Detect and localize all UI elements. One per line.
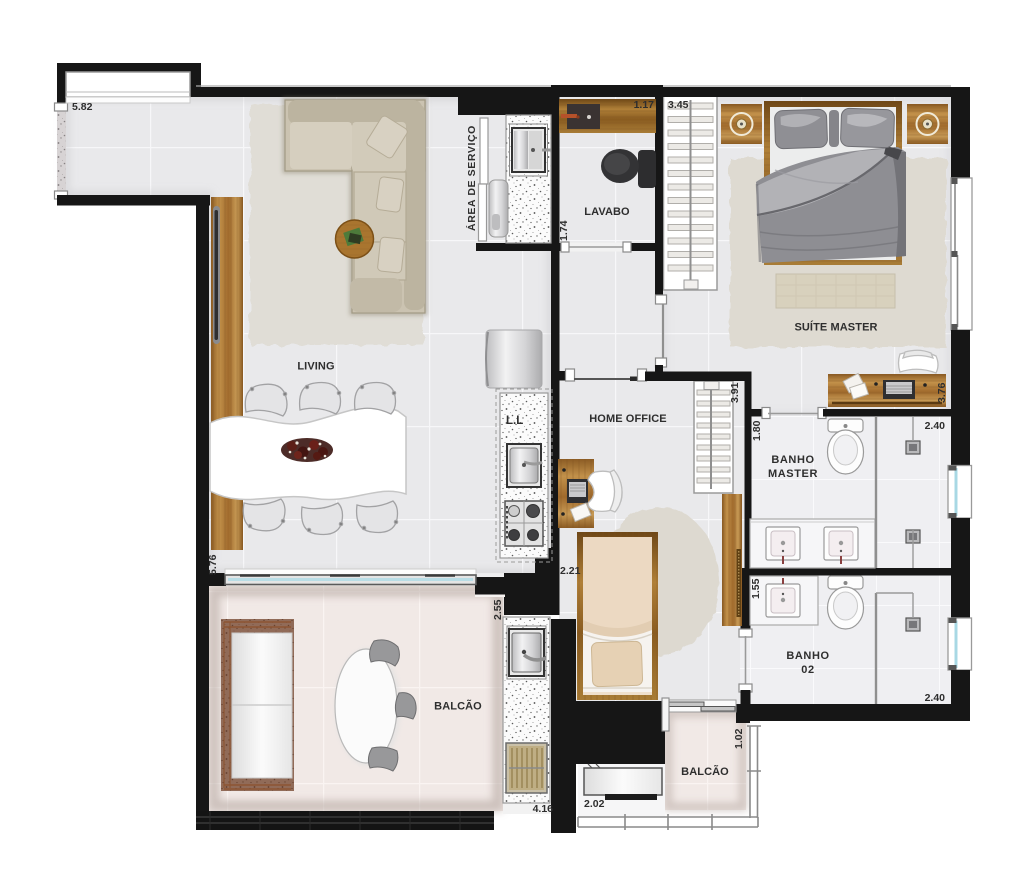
svg-text:3.76: 3.76	[936, 382, 948, 403]
svg-text:2.40: 2.40	[925, 692, 946, 704]
svg-text:1.74: 1.74	[558, 220, 570, 241]
svg-text:2.40: 2.40	[925, 420, 946, 432]
svg-text:5.76: 5.76	[207, 554, 219, 575]
svg-text:BANHO: BANHO	[786, 650, 829, 662]
svg-text:1.80: 1.80	[751, 420, 763, 441]
svg-text:3.45: 3.45	[668, 99, 689, 111]
svg-text:3.91: 3.91	[729, 382, 741, 403]
svg-text:1.02: 1.02	[733, 728, 745, 749]
svg-text:4.16: 4.16	[533, 803, 554, 815]
svg-text:ÁREA DE SERVIÇO: ÁREA DE SERVIÇO	[465, 125, 478, 231]
svg-text:02: 02	[801, 664, 814, 676]
svg-text:5.82: 5.82	[72, 101, 93, 113]
svg-text:MASTER: MASTER	[768, 468, 818, 480]
svg-text:SUÍTE MASTER: SUÍTE MASTER	[794, 321, 877, 334]
svg-text:HOME OFFICE: HOME OFFICE	[589, 413, 667, 425]
svg-text:2.55: 2.55	[492, 599, 504, 620]
svg-text:LIVING: LIVING	[297, 361, 334, 373]
svg-text:2.02: 2.02	[584, 798, 605, 810]
svg-text:LAVABO: LAVABO	[584, 206, 630, 218]
svg-text:2.21: 2.21	[560, 565, 581, 577]
svg-text:L.L: L.L	[506, 415, 523, 427]
svg-text:BALCÃO: BALCÃO	[434, 700, 482, 713]
svg-text:1.55: 1.55	[750, 578, 762, 599]
svg-text:BANHO: BANHO	[771, 454, 814, 466]
svg-text:BALCÃO: BALCÃO	[681, 765, 729, 778]
svg-text:1.17: 1.17	[634, 99, 655, 111]
